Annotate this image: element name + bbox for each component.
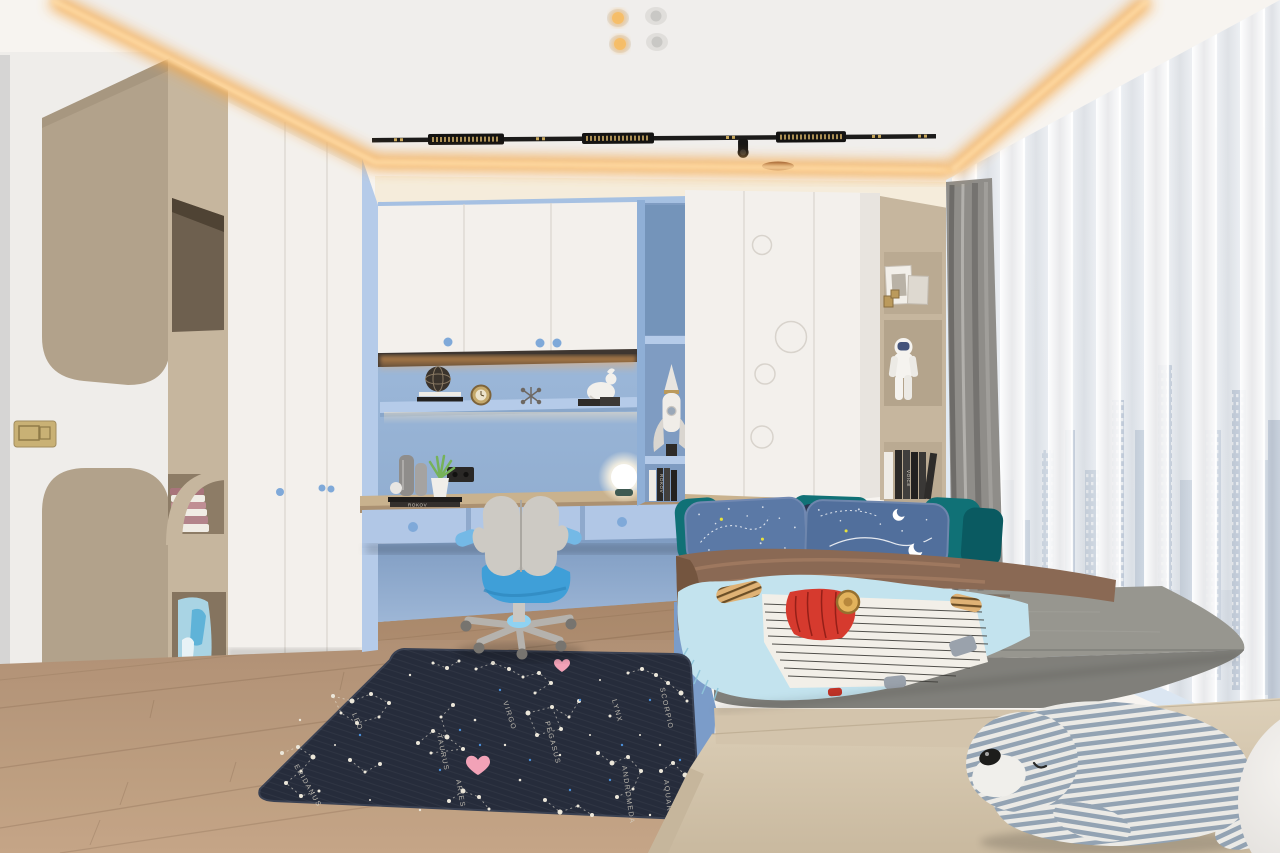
column-books: ROKOV [649,468,677,501]
desk-book-spine-label: ROKOV [408,503,427,508]
teal-pillow-dark [960,507,1004,568]
light-switch [14,421,56,447]
wardrobe-knob [328,486,335,493]
cabinet-knob [444,338,453,347]
decor-ball [390,482,402,494]
drawer-knob [617,517,627,527]
desk-books: ROKOV [388,497,462,508]
cabinet-knob [553,339,562,348]
blue-shelf-column: ROKOV [637,200,690,506]
wardrobe-knob [276,488,284,496]
shelf-book-spine-label: VOICE [906,470,911,487]
scene-canvas: ROKOV [0,0,1280,853]
drawer-knob [408,522,418,532]
tall-white-cabinet [685,190,880,502]
wardrobe-knob [319,485,326,492]
column-book-spine-label: ROKOV [659,474,664,493]
bedroom-render: ROKOV [0,0,1280,853]
cabinet-niche-towels [166,470,226,545]
track-spot-head [738,139,749,158]
vase [415,463,427,496]
nook-side-panel [362,158,378,652]
wood-cabinet-side [168,58,228,662]
right-shelf-unit: VOICE [880,196,948,506]
desk-clock [472,386,491,405]
wire-sphere-decor [426,367,451,392]
cabinet-knob [536,339,545,348]
nook-upper-cabinets [378,202,637,373]
wardrobe [228,90,362,657]
